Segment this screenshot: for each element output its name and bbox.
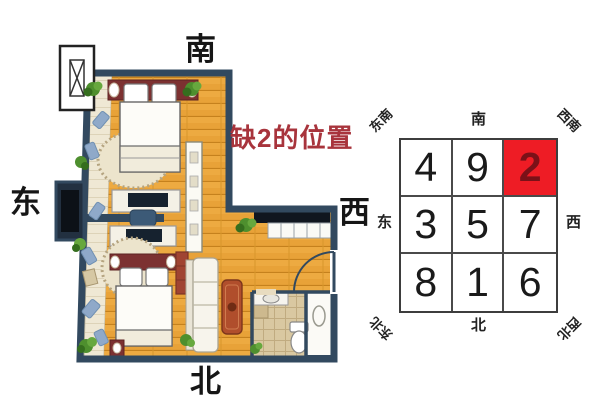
elevator-shaft <box>60 46 94 110</box>
luoshu-cell-3: 3 <box>401 197 453 254</box>
wardrobe-partition <box>186 142 202 252</box>
grid-label-west: 西 <box>566 215 581 230</box>
bathroom-door-gap <box>256 289 276 295</box>
grid-label-east: 东 <box>377 215 392 230</box>
luoshu-grid: 4 9 2 3 5 7 8 1 6 <box>399 138 558 313</box>
luoshu-cell-5: 5 <box>453 197 505 254</box>
luoshu-cell-4: 4 <box>401 140 453 197</box>
fengshui-floorplan-figure: { "annotation": { "label": "缺2的位置", "col… <box>0 0 600 400</box>
fp-label-north: 北 <box>190 366 221 397</box>
luoshu-cell-9: 9 <box>453 140 505 197</box>
fp-label-east: 东 <box>10 187 41 218</box>
bed-2 <box>110 254 176 356</box>
grid-label-south: 南 <box>399 112 558 127</box>
fp-label-south: 南 <box>185 34 216 65</box>
bathroom <box>252 292 332 356</box>
luoshu-cell-6: 6 <box>504 254 556 311</box>
luoshu-cell-7: 7 <box>504 197 556 254</box>
ac-unit <box>56 182 84 240</box>
coffee-table <box>222 280 242 334</box>
grid-label-north: 北 <box>399 318 558 333</box>
luoshu-cell-8: 8 <box>401 254 453 311</box>
missing-2-annotation: 缺2的位置 <box>230 124 353 153</box>
luoshu-cell-1: 1 <box>453 254 505 311</box>
luoshu-cell-highlighted: 2 <box>504 140 556 197</box>
fp-label-west: 西 <box>339 197 370 228</box>
